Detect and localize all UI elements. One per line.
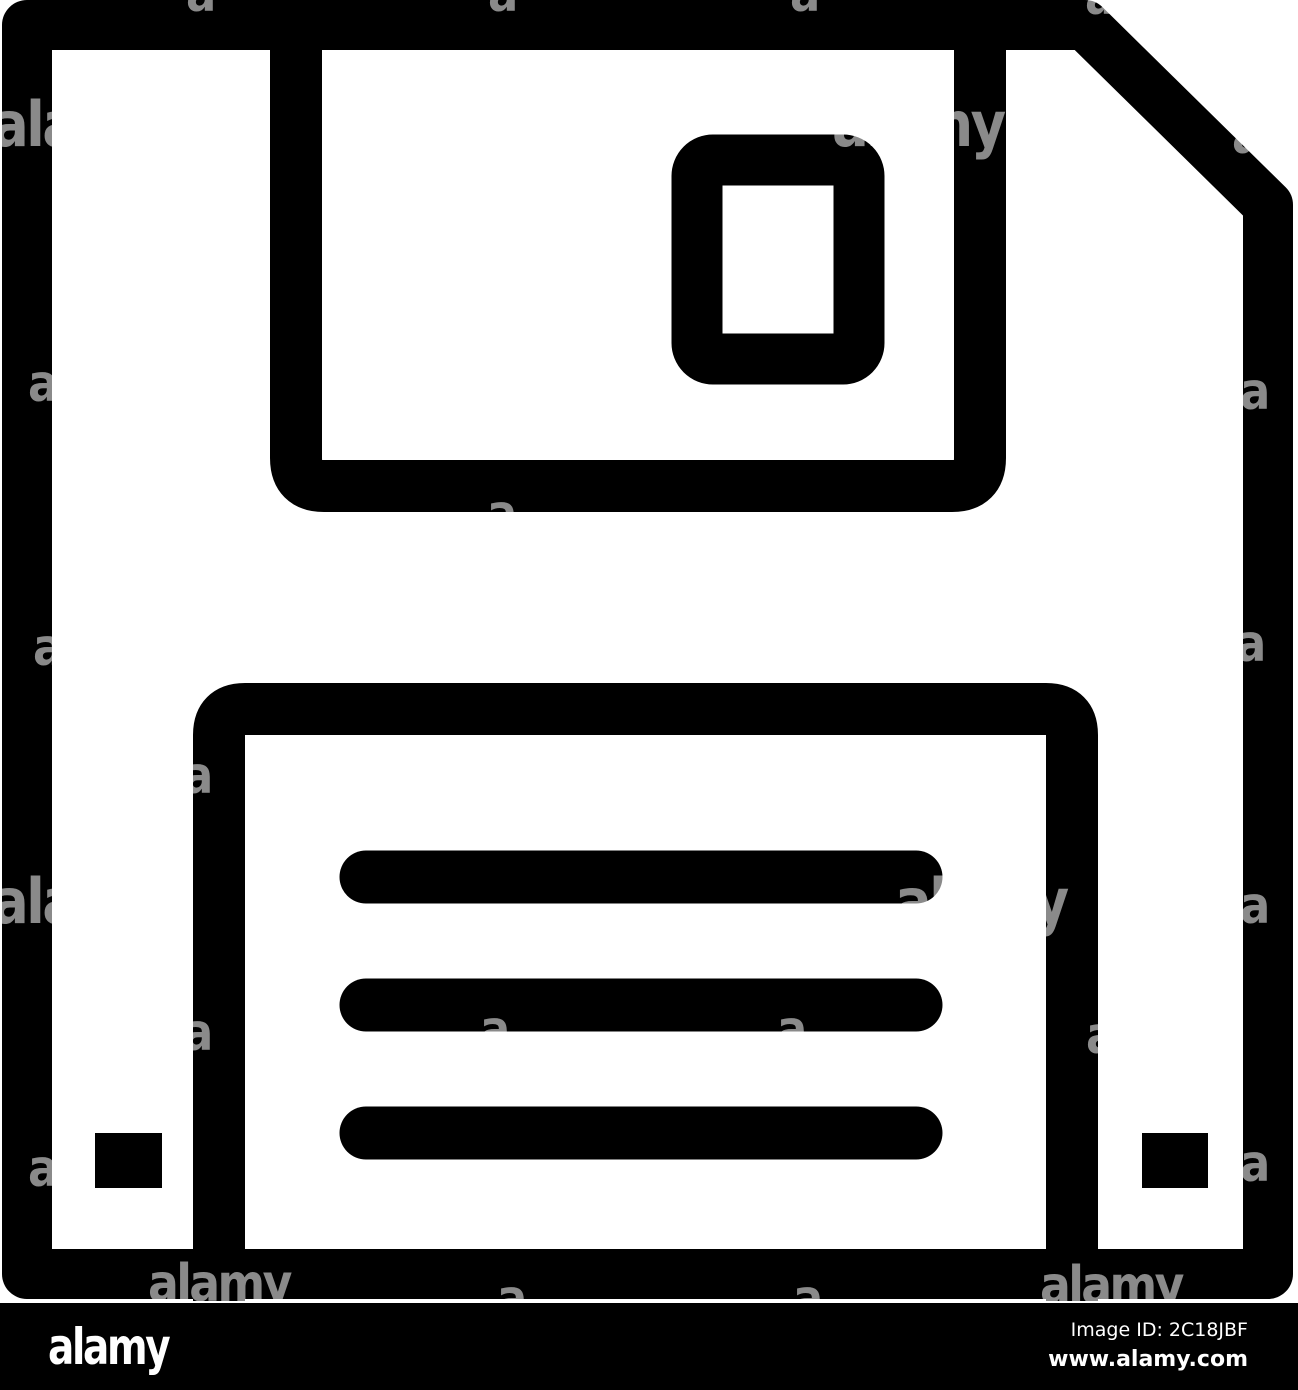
alamy-logo: alamy (48, 1322, 168, 1372)
alamy-footer-bar: alamy Image ID: 2C18JBF www.alamy.com (0, 1303, 1298, 1390)
footer-meta: Image ID: 2C18JBF www.alamy.com (1048, 1320, 1248, 1372)
write-protect-window (697, 160, 859, 359)
label-lines (366, 877, 916, 1133)
alamy-website-label: www.alamy.com (1048, 1347, 1248, 1372)
sector-hole-left (95, 1133, 162, 1188)
image-id-label: Image ID: 2C18JBF (1048, 1320, 1248, 1342)
stock-image-page: a a a a alamy alamy a a a a a a a alamy … (0, 0, 1298, 1390)
floppy-disk-icon (0, 0, 1298, 1301)
watermarked-image: a a a a alamy alamy a a a a a a a alamy … (0, 0, 1298, 1301)
sector-hole-right (1142, 1133, 1208, 1188)
